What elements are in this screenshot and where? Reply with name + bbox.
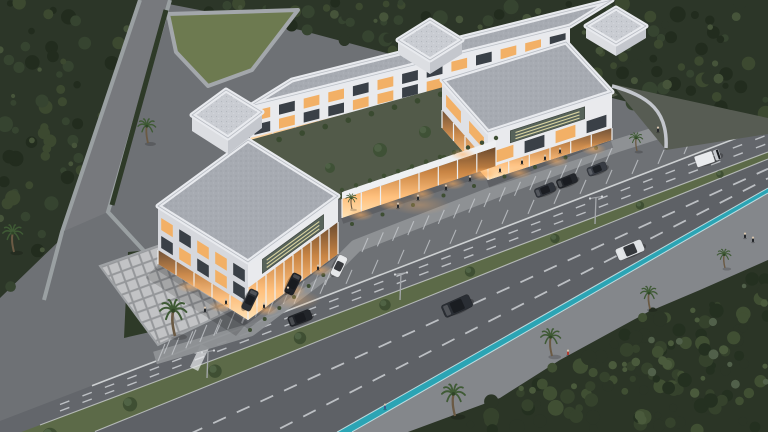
- arcade-planter: [354, 183, 358, 187]
- tree-canopy: [695, 318, 700, 323]
- terrace-planter: [369, 111, 375, 117]
- tree-canopy: [571, 383, 577, 389]
- sidewalk-bush: [350, 222, 354, 226]
- tree-canopy: [73, 81, 80, 88]
- sidewalk-bush: [472, 184, 476, 188]
- tree-canopy: [28, 28, 35, 35]
- tree-canopy: [47, 50, 59, 62]
- tree-canopy: [609, 361, 617, 369]
- tree-canopy: [596, 47, 604, 55]
- arcade-planter: [438, 155, 442, 159]
- tree-canopy: [719, 345, 728, 354]
- storefront-glow: [506, 167, 532, 179]
- tree-canopy: [648, 368, 656, 376]
- terrace-planter: [276, 137, 282, 143]
- tree-canopy: [742, 57, 756, 71]
- tree-canopy: [560, 389, 575, 404]
- tree-canopy: [673, 324, 686, 337]
- tree-canopy: [761, 299, 768, 306]
- tree-canopy: [356, 3, 363, 10]
- tree-canopy: [639, 385, 648, 394]
- tree-canopy: [383, 33, 393, 43]
- tree-canopy: [720, 366, 730, 376]
- arcade-planter: [494, 136, 498, 140]
- terrace-planter: [299, 130, 305, 136]
- tree-canopy: [70, 15, 81, 26]
- tree-canopy: [722, 83, 728, 89]
- tree-canopy: [653, 375, 660, 382]
- median-shrub-highlight: [637, 202, 642, 207]
- arcade-planter: [410, 164, 414, 168]
- tree-canopy: [709, 349, 719, 359]
- tree-canopy: [732, 12, 741, 21]
- arcade-planter: [424, 159, 428, 163]
- tree-canopy: [622, 367, 627, 372]
- tree-canopy: [632, 358, 641, 367]
- tree-canopy: [695, 43, 708, 56]
- tree-canopy: [599, 372, 610, 383]
- tree-canopy: [222, 1, 231, 10]
- tree-canopy: [467, 421, 475, 429]
- tree-canopy: [21, 42, 31, 52]
- arcade-planter: [368, 178, 372, 182]
- tree-canopy: [706, 366, 715, 375]
- architectural-render: [0, 0, 768, 432]
- tree-canopy: [72, 118, 83, 129]
- tree-canopy: [581, 350, 596, 365]
- tree-canopy: [621, 388, 628, 395]
- tree-canopy: [701, 376, 706, 381]
- tree-canopy: [653, 312, 667, 326]
- tree-canopy: [586, 410, 600, 424]
- terrace-tree: [420, 127, 427, 134]
- tree-canopy: [686, 70, 694, 78]
- tree-canopy: [529, 387, 536, 394]
- storefront-glow: [307, 264, 333, 276]
- tree-canopy: [519, 386, 524, 391]
- tree-canopy: [716, 395, 727, 406]
- tree-canopy: [302, 24, 313, 35]
- tree-canopy: [669, 404, 677, 412]
- median-shrub-highlight: [551, 235, 556, 240]
- tree-canopy: [678, 63, 685, 70]
- median-shrub-highlight: [295, 333, 302, 340]
- median-shrub-highlight: [717, 171, 721, 175]
- terrace-planter: [392, 104, 398, 110]
- terrace-tree: [374, 144, 382, 152]
- storefront-glow: [450, 148, 476, 160]
- arcade-planter: [340, 188, 344, 192]
- tree-canopy: [43, 9, 53, 19]
- tree-canopy: [704, 393, 718, 407]
- tree-canopy: [12, 127, 19, 134]
- tree-canopy: [62, 117, 70, 125]
- tree-canopy: [589, 368, 598, 377]
- tree-canopy: [742, 284, 747, 289]
- storefront-glow: [580, 143, 606, 155]
- tree-canopy: [56, 71, 63, 78]
- tree-canopy: [727, 362, 732, 367]
- tree-canopy: [648, 25, 660, 37]
- tree-canopy: [738, 324, 747, 333]
- tree-canopy: [13, 62, 24, 73]
- tree-canopy: [694, 56, 703, 65]
- tree-canopy: [483, 408, 499, 424]
- tree-canopy: [712, 92, 722, 102]
- tree-canopy: [709, 304, 723, 318]
- median-shrub-highlight: [380, 300, 386, 306]
- tree-canopy: [5, 281, 16, 292]
- tree-canopy: [610, 62, 617, 69]
- arcade-planter: [396, 169, 400, 173]
- tree-canopy: [302, 5, 315, 18]
- tree-canopy: [589, 424, 597, 432]
- tree-canopy: [620, 343, 634, 357]
- terrace-planter: [322, 124, 328, 130]
- storefront-glow: [468, 169, 494, 181]
- tree-canopy: [712, 60, 718, 66]
- tree-canopy: [456, 16, 464, 24]
- tree-canopy: [21, 212, 31, 222]
- tree-canopy: [691, 11, 699, 19]
- median-shrub-highlight: [466, 267, 472, 273]
- tree-canopy: [622, 362, 627, 367]
- tree-canopy: [630, 376, 636, 382]
- tree-canopy: [40, 123, 48, 131]
- tree-canopy: [631, 77, 638, 84]
- tree-canopy: [714, 74, 724, 84]
- tree-canopy: [25, 181, 33, 189]
- tree-canopy: [533, 414, 546, 427]
- tree-canopy: [68, 161, 73, 166]
- tree-canopy: [61, 171, 74, 184]
- tree-canopy: [10, 100, 16, 106]
- tree-canopy: [661, 21, 669, 29]
- sidewalk-bush: [248, 328, 252, 332]
- tree-canopy: [238, 5, 242, 9]
- tree-canopy: [478, 24, 483, 29]
- tree-canopy: [707, 24, 713, 30]
- sidewalk-bush: [307, 284, 311, 288]
- tree-canopy: [539, 3, 551, 15]
- storefront-glow: [390, 195, 450, 215]
- tree-canopy: [36, 95, 49, 108]
- tree-canopy: [330, 10, 339, 19]
- tree-canopy: [346, 18, 355, 27]
- tree-canopy: [702, 72, 714, 84]
- tree-canopy: [690, 388, 699, 397]
- tree-canopy: [11, 94, 15, 98]
- tree-canopy: [619, 329, 631, 341]
- tree-canopy: [649, 55, 657, 63]
- tree-canopy: [494, 9, 505, 20]
- tree-canopy: [717, 36, 725, 44]
- tree-canopy: [58, 97, 67, 106]
- tree-canopy: [690, 308, 695, 313]
- tree-canopy: [676, 338, 683, 345]
- tree-canopy: [566, 1, 573, 8]
- terrace-tree: [325, 163, 331, 169]
- tree-canopy: [41, 151, 50, 160]
- tree-canopy: [762, 364, 767, 369]
- tree-canopy: [362, 30, 374, 42]
- tree-canopy: [56, 85, 65, 94]
- tree-canopy: [38, 230, 46, 238]
- tree-canopy: [750, 422, 761, 432]
- tree-canopy: [727, 331, 740, 344]
- tree-canopy: [635, 411, 645, 421]
- tree-canopy: [483, 15, 494, 26]
- tree-canopy: [37, 67, 41, 71]
- tree-canopy: [651, 66, 662, 77]
- tree-canopy: [648, 337, 655, 344]
- median-shrub-highlight: [124, 398, 132, 406]
- tree-canopy: [504, 0, 519, 14]
- tree-canopy: [678, 373, 692, 387]
- tree-canopy: [705, 16, 714, 25]
- sidewalk-bush: [442, 194, 446, 198]
- tree-canopy: [547, 363, 557, 373]
- tree-canopy: [665, 418, 676, 429]
- tree-canopy: [78, 37, 91, 50]
- storefront-glow: [440, 178, 466, 190]
- sidewalk-bush: [533, 165, 537, 169]
- tree-canopy: [734, 351, 744, 361]
- tree-canopy: [4, 55, 15, 66]
- sidewalk-bush: [503, 175, 507, 179]
- storefront-glow: [269, 290, 321, 310]
- tree-canopy: [25, 55, 40, 70]
- tree-canopy: [662, 382, 675, 395]
- tree-canopy: [394, 15, 404, 25]
- tree-canopy: [535, 8, 541, 14]
- terrace-planter: [346, 117, 352, 123]
- tree-canopy: [40, 247, 45, 252]
- tree-canopy: [522, 399, 534, 411]
- tree-canopy: [72, 143, 78, 149]
- tree-canopy: [638, 313, 647, 322]
- render-canvas: [0, 0, 768, 432]
- tree-canopy: [383, 1, 390, 8]
- tree-canopy: [628, 59, 643, 74]
- tree-canopy: [670, 6, 686, 22]
- tree-canopy: [534, 401, 541, 408]
- tree-canopy: [665, 31, 677, 43]
- tree-canopy: [735, 397, 744, 406]
- tree-canopy: [654, 40, 663, 49]
- tree-canopy: [668, 340, 674, 346]
- tree-canopy: [484, 394, 498, 408]
- tree-canopy: [73, 153, 83, 163]
- tree-canopy: [610, 340, 619, 349]
- tree-canopy: [7, 0, 14, 7]
- storefront-glow: [208, 300, 234, 312]
- tree-canopy: [629, 331, 642, 344]
- tree-canopy: [323, 4, 330, 11]
- tree-canopy: [585, 393, 598, 406]
- tree-canopy: [658, 356, 667, 365]
- tree-canopy: [339, 35, 350, 46]
- tree-canopy: [731, 380, 740, 389]
- tree-canopy: [644, 11, 656, 23]
- tree-canopy: [738, 313, 749, 324]
- tree-canopy: [616, 67, 629, 80]
- tree-canopy: [585, 381, 595, 391]
- tree-canopy: [569, 409, 583, 423]
- tree-canopy: [537, 379, 548, 390]
- tree-canopy: [709, 318, 717, 326]
- tree-canopy: [686, 86, 696, 96]
- arcade-planter: [480, 141, 484, 145]
- tree-canopy: [2, 198, 14, 210]
- tree-canopy: [745, 272, 758, 285]
- tree-canopy: [379, 12, 388, 21]
- tree-canopy: [663, 80, 672, 89]
- terrace-planter: [415, 98, 421, 104]
- tree-canopy: [548, 400, 564, 416]
- storefront-glow: [543, 155, 569, 167]
- tree-canopy: [744, 388, 754, 398]
- tree-canopy: [652, 346, 664, 358]
- sidewalk-bush: [263, 317, 267, 321]
- tree-canopy: [739, 417, 748, 426]
- tree-canopy: [373, 19, 377, 23]
- tree-canopy: [740, 359, 749, 368]
- tree-canopy: [44, 196, 58, 210]
- sidewalk-bush: [381, 213, 385, 217]
- tree-canopy: [29, 138, 35, 144]
- tree-canopy: [734, 80, 747, 93]
- storefront-glow: [177, 281, 203, 293]
- arcade-planter: [382, 174, 386, 178]
- tree-canopy: [42, 144, 51, 153]
- tree-canopy: [654, 412, 661, 419]
- tree-canopy: [653, 420, 665, 432]
- tree-canopy: [582, 30, 586, 34]
- tree-canopy: [60, 59, 66, 65]
- tree-canopy: [3, 150, 17, 164]
- median-shrub-highlight: [209, 365, 216, 372]
